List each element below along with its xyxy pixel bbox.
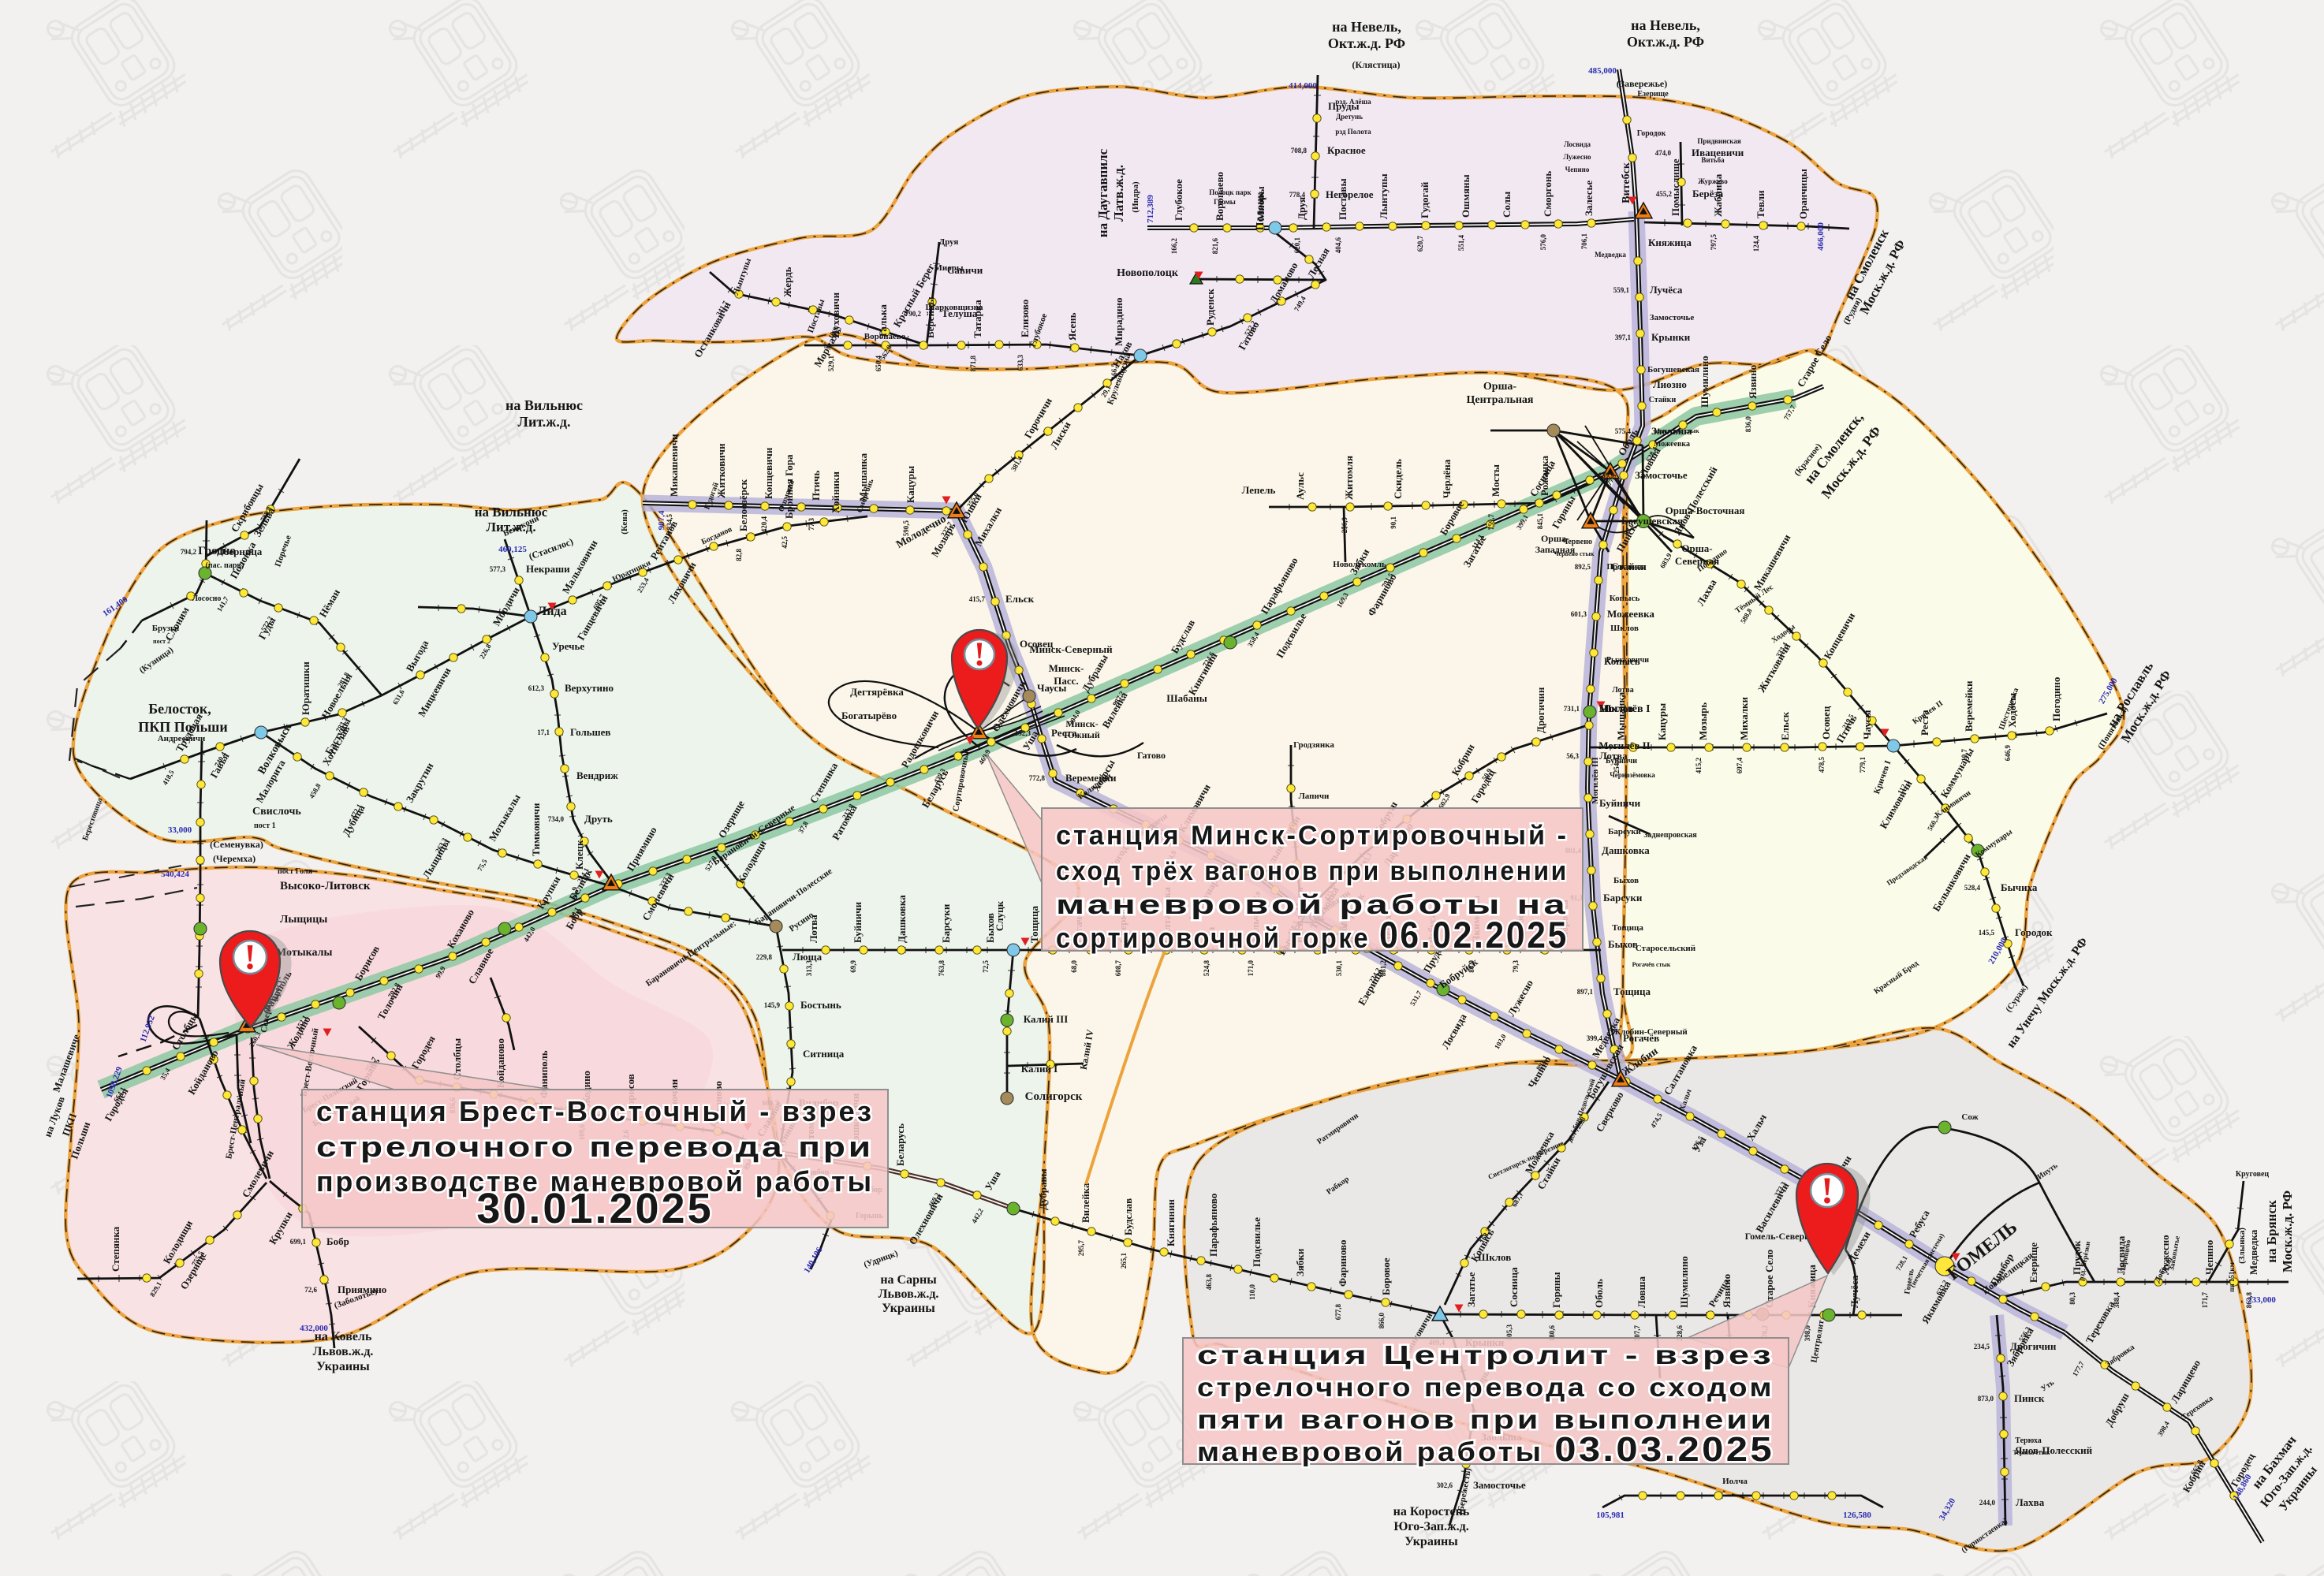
svg-text:Можеевка: Можеевка <box>1607 608 1654 620</box>
svg-text:845,1: 845,1 <box>1536 513 1544 530</box>
svg-text:Южный: Южный <box>1064 729 1100 740</box>
svg-text:ПКП Польши: ПКП Польши <box>138 719 228 735</box>
svg-text:Тощица: Тощица <box>1613 985 1651 997</box>
svg-text:Лахва: Лахва <box>2016 1496 2045 1508</box>
svg-text:Можеевка: Можеевка <box>1654 440 1690 449</box>
svg-text:Мозырь: Мозырь <box>1697 702 1709 740</box>
svg-text:Жердь: Жердь <box>782 266 793 297</box>
svg-text:Рыжковичи: Рыжковичи <box>1606 656 1649 665</box>
svg-text:Лиозно: Лиозно <box>1653 378 1687 390</box>
svg-text:772,8: 772,8 <box>1029 774 1046 782</box>
svg-text:(Черемха): (Черемха) <box>213 853 256 864</box>
svg-text:Круговец: Круговец <box>2236 1170 2270 1179</box>
svg-text:Зябки: Зябки <box>1294 1248 1306 1276</box>
svg-text:Чаусы: Чаусы <box>1861 710 1873 740</box>
svg-text:Ошмяны: Ошмяны <box>1460 174 1472 218</box>
svg-text:сход трёх вагонов при выполнен: сход трёх вагонов при выполнении <box>1056 856 1569 886</box>
svg-text:Лучёса: Лучёса <box>1650 284 1683 296</box>
svg-text:233,000: 233,000 <box>2248 1295 2276 1305</box>
svg-text:699,1: 699,1 <box>290 1238 307 1246</box>
svg-text:171,0: 171,0 <box>1247 960 1255 977</box>
svg-text:Новополоцк: Новополоцк <box>1117 267 1179 279</box>
svg-text:станция Брест-Восточный - взре: станция Брест-Восточный - взрез <box>316 1095 874 1127</box>
svg-text:466,000: 466,000 <box>1816 222 1826 251</box>
svg-text:79,3: 79,3 <box>1512 960 1520 973</box>
svg-text:Могилёв I: Могилёв I <box>1598 703 1650 715</box>
svg-text:Дрогичин: Дрогичин <box>2010 1340 2057 1352</box>
svg-text:(Клястица): (Клястица) <box>1352 59 1401 70</box>
svg-text:432,000: 432,000 <box>300 1324 328 1333</box>
svg-text:Буйничи: Буйничи <box>1599 797 1641 809</box>
svg-text:Мирадино: Мирадино <box>1113 297 1125 346</box>
svg-text:608,7: 608,7 <box>1114 960 1122 977</box>
svg-text:731,1: 731,1 <box>1564 705 1580 713</box>
svg-text:Горяны: Горяны <box>1550 1272 1562 1308</box>
svg-text:404,6: 404,6 <box>1334 237 1342 254</box>
svg-text:Быхов: Быхов <box>1608 938 1638 950</box>
svg-text:Крынки: Крынки <box>1651 331 1691 343</box>
svg-text:Брузги: Брузги <box>152 624 180 633</box>
svg-text:871,8: 871,8 <box>969 356 977 372</box>
svg-text:Аульс: Аульс <box>1294 472 1306 500</box>
svg-text:821,6: 821,6 <box>1211 238 1219 255</box>
svg-text:Моск.ж.д. РФ: Моск.ж.д. РФ <box>2280 1190 2295 1272</box>
svg-text:68,0: 68,0 <box>1070 960 1078 973</box>
svg-text:Можеевка стык: Можеевка стык <box>1654 427 1699 434</box>
svg-text:Лит.ж.д.: Лит.ж.д. <box>518 414 571 430</box>
svg-text:Жлобин-Северный: Жлобин-Северный <box>1612 1027 1688 1037</box>
svg-text:Лыщицы: Лыщицы <box>280 914 327 926</box>
svg-text:Чернозёмовка: Чернозёмовка <box>1610 771 1655 779</box>
svg-text:Боровое: Боровое <box>1380 1257 1392 1295</box>
svg-text:Пинск: Пинск <box>2014 1392 2045 1404</box>
svg-text:Фариново: Фариново <box>1337 1240 1349 1287</box>
svg-text:145,9: 145,9 <box>764 1001 781 1009</box>
svg-text:697,4: 697,4 <box>1736 758 1744 774</box>
svg-text:Минск-Северный: Минск-Северный <box>1029 643 1113 655</box>
svg-text:Украины: Украины <box>882 1302 935 1315</box>
svg-text:794,2: 794,2 <box>181 548 197 556</box>
svg-text:Иолча: Иолча <box>1722 1477 1748 1486</box>
svg-text:(Завережье): (Завережье) <box>1617 78 1668 89</box>
svg-text:Мосты: Мосты <box>1490 464 1501 497</box>
svg-text:Копцевичи: Копцевичи <box>763 447 774 499</box>
svg-text:Медведка: Медведка <box>2248 1229 2259 1275</box>
svg-text:Друя: Друя <box>939 237 959 247</box>
svg-text:Воропаево: Воропаево <box>864 332 906 341</box>
svg-text:Ситница: Ситница <box>803 1048 845 1060</box>
svg-text:Витебск: Витебск <box>1621 162 1632 203</box>
svg-text:Княгинин: Княгинин <box>1165 1199 1177 1246</box>
svg-text:576,0: 576,0 <box>1539 234 1547 251</box>
svg-text:Окт.ж.д. РФ: Окт.ж.д. РФ <box>1627 34 1704 50</box>
svg-text:Богатырёво: Богатырёво <box>841 710 897 721</box>
svg-text:575,4: 575,4 <box>1615 427 1632 435</box>
svg-text:Веремейки: Веремейки <box>1963 680 1975 732</box>
svg-text:стрелочного перевода со сходом: стрелочного перевода со сходом <box>1197 1373 1774 1402</box>
svg-text:стрелочного перевода при: стрелочного перевода при <box>316 1131 874 1163</box>
svg-text:706,1: 706,1 <box>1580 233 1588 250</box>
svg-text:Погодино: Погодино <box>2050 677 2062 721</box>
svg-text:80,3: 80,3 <box>2068 1292 2076 1305</box>
svg-text:Столбцы: Столбцы <box>451 1038 463 1080</box>
svg-text:778,4: 778,4 <box>1289 191 1306 199</box>
svg-text:Гольшев: Гольшев <box>570 726 610 738</box>
svg-text:пост Голя: пост Голя <box>278 867 313 876</box>
svg-text:Осовец: Осовец <box>1820 706 1832 740</box>
svg-text:633,3: 633,3 <box>1017 355 1024 371</box>
svg-text:Орша-: Орша- <box>1483 381 1516 393</box>
svg-text:Парафьяново: Парафьяново <box>1207 1194 1219 1257</box>
svg-text:234,5: 234,5 <box>1974 1343 1990 1351</box>
svg-text:414,000: 414,000 <box>1289 81 1317 91</box>
svg-text:779,1: 779,1 <box>1859 757 1867 773</box>
svg-text:Тимковичи: Тимковичи <box>530 803 542 856</box>
svg-text:551,4: 551,4 <box>1457 235 1465 251</box>
svg-text:Быхов: Быхов <box>1613 876 1639 885</box>
svg-text:Залесье: Залесье <box>1583 181 1595 216</box>
svg-text:Руденск: Руденск <box>1204 289 1216 326</box>
svg-text:Заднепровская: Заднепровская <box>1643 831 1697 840</box>
svg-text:Язвино: Язвино <box>1747 365 1759 399</box>
svg-text:рзд. Алёша: рзд. Алёша <box>1335 98 1371 106</box>
svg-text:478,5: 478,5 <box>1818 757 1826 773</box>
svg-text:Терюха стык: Терюха стык <box>2013 1449 2050 1456</box>
svg-text:Лепель: Лепель <box>1242 484 1276 496</box>
svg-text:Шабаны: Шабаны <box>1166 692 1207 704</box>
svg-text:(Индра): (Индра) <box>1131 181 1140 213</box>
svg-text:Верхутино: Верхутино <box>565 682 614 694</box>
svg-text:Шумилино: Шумилино <box>1678 1256 1690 1308</box>
svg-text:Вилейка: Вилейка <box>1080 1183 1091 1223</box>
svg-text:Дегтярёвка: Дегтярёвка <box>850 686 904 698</box>
svg-text:Лужесно: Лужесно <box>1563 153 1591 161</box>
svg-text:Красное: Красное <box>1327 144 1366 156</box>
svg-text:(пас. парк): (пас. парк) <box>206 561 244 570</box>
svg-text:646,9: 646,9 <box>2004 745 2012 762</box>
svg-text:Замосточье: Замосточье <box>1635 469 1688 481</box>
svg-text:Оболь: Оболь <box>1593 1279 1605 1308</box>
svg-text:256,9: 256,9 <box>1341 517 1349 534</box>
svg-text:485,000: 485,000 <box>1588 66 1617 76</box>
svg-text:Микашевичи: Микашевичи <box>668 434 680 497</box>
svg-text:Черлёна: Черлёна <box>1441 459 1453 498</box>
svg-text:145,5: 145,5 <box>1979 929 1995 937</box>
svg-text:Тевли: Тевли <box>1755 190 1766 218</box>
svg-text:!: ! <box>974 636 985 673</box>
svg-text:Сосница: Сосница <box>1508 1267 1520 1307</box>
svg-text:Старосельский: Старосельский <box>1636 944 1696 953</box>
svg-text:Михалки: Михалки <box>1738 697 1750 740</box>
svg-text:77,3: 77,3 <box>808 518 815 531</box>
svg-text:415,2: 415,2 <box>1695 758 1703 774</box>
svg-text:Вендриж: Вендриж <box>576 769 618 781</box>
svg-text:Гродзянка: Гродзянка <box>1293 740 1334 750</box>
svg-text:Елизово: Елизово <box>1019 300 1031 337</box>
svg-text:на Невель,: на Невель, <box>1332 19 1401 35</box>
svg-text:124,4: 124,4 <box>1752 236 1760 252</box>
svg-text:Гудогай: Гудогай <box>1419 181 1431 218</box>
svg-text:Гродно: Гродно <box>198 545 236 557</box>
svg-text:Львов.ж.д.: Львов.ж.д. <box>313 1345 374 1358</box>
svg-text:Дрогичин: Дрогичин <box>1535 687 1546 733</box>
svg-text:90,1: 90,1 <box>1390 516 1397 529</box>
svg-text:105,981: 105,981 <box>1596 1511 1625 1520</box>
svg-text:Дашковка: Дашковка <box>1602 844 1650 856</box>
svg-text:69,9: 69,9 <box>849 960 857 973</box>
svg-text:Стайки: Стайки <box>1649 396 1677 404</box>
svg-text:Городок: Городок <box>1637 129 1666 138</box>
svg-text:Червено стык: Червено стык <box>1554 550 1595 557</box>
svg-text:Гатово: Гатово <box>1137 750 1166 761</box>
svg-text:873,0: 873,0 <box>1978 1395 1994 1403</box>
svg-text:Шарковщизна: Шарковщизна <box>926 303 983 312</box>
svg-text:Ясень: Ясень <box>1066 312 1078 341</box>
svg-text:Громы: Громы <box>1214 198 1236 206</box>
svg-text:Барсуки: Барсуки <box>940 903 952 943</box>
svg-text:Лынтупы: Лынтупы <box>1378 173 1390 219</box>
svg-text:530,1: 530,1 <box>1335 960 1343 977</box>
svg-text:Полоцк: Полоцк <box>1255 192 1266 231</box>
svg-text:Степянка: Степянка <box>110 1226 121 1272</box>
svg-text:Житомля: Житомля <box>1343 456 1355 500</box>
svg-text:Тощица: Тощица <box>1028 905 1040 943</box>
svg-text:Чепино: Чепино <box>1565 166 1590 173</box>
svg-text:265,1: 265,1 <box>1120 1253 1128 1269</box>
svg-text:Шклов: Шклов <box>1478 1251 1511 1263</box>
svg-text:Езерище: Езерище <box>1637 90 1669 99</box>
svg-text:Лососно: Лососно <box>192 594 222 603</box>
svg-text:Центральная: Центральная <box>1466 394 1533 406</box>
svg-text:152,3: 152,3 <box>1015 729 1031 737</box>
svg-text:Городок: Городок <box>2015 926 2053 938</box>
svg-text:на Невель,: на Невель, <box>1631 17 1700 33</box>
svg-text:763,8: 763,8 <box>938 960 946 977</box>
svg-text:Будслав: Будслав <box>1122 1198 1134 1235</box>
svg-text:836,0: 836,0 <box>1744 416 1752 433</box>
svg-text:Минск-: Минск- <box>1049 662 1084 674</box>
svg-text:Беларусь: Беларусь <box>894 1123 906 1166</box>
svg-text:Червено: Червено <box>1562 538 1592 546</box>
svg-text:171,7: 171,7 <box>2201 1292 2209 1309</box>
svg-text:Бобр: Бобр <box>326 1235 349 1247</box>
svg-text:станция Минск-Сортировочный -: станция Минск-Сортировочный - <box>1056 821 1569 851</box>
svg-text:Глубокое: Глубокое <box>1173 179 1184 221</box>
svg-text:Копысь: Копысь <box>1610 594 1640 603</box>
svg-text:пост 1: пост 1 <box>254 822 276 830</box>
svg-text:42,5: 42,5 <box>781 536 789 549</box>
svg-text:Минск-: Минск- <box>1065 718 1098 729</box>
svg-text:420,4: 420,4 <box>760 516 768 533</box>
svg-text:Слуцк: Слуцк <box>994 900 1005 931</box>
svg-text:620,7: 620,7 <box>1416 236 1424 252</box>
svg-text:Барсуки: Барсуки <box>1608 827 1641 836</box>
svg-text:302,6: 302,6 <box>1437 1481 1453 1489</box>
svg-text:540,424: 540,424 <box>161 870 189 879</box>
svg-text:Дубравы: Дубравы <box>1037 1168 1049 1210</box>
svg-text:Скидель: Скидель <box>1392 459 1404 499</box>
svg-text:Княжица: Княжица <box>1648 237 1692 248</box>
svg-text:на Вильнюс: на Вильнюс <box>505 397 583 413</box>
svg-text:Клецк: Клецк <box>573 840 585 870</box>
svg-text:Лида: Лида <box>537 605 566 618</box>
svg-text:524,8: 524,8 <box>1203 960 1210 977</box>
svg-text:881,2: 881,2 <box>1379 960 1387 977</box>
svg-text:Лосвида: Лосвида <box>1564 140 1591 148</box>
svg-text:Орша-: Орша- <box>1681 542 1712 554</box>
svg-text:Могилёв II: Могилёв II <box>1598 740 1650 751</box>
svg-text:Бычиха: Бычиха <box>2001 881 2038 893</box>
svg-text:Богушевская: Богушевская <box>1647 365 1699 374</box>
svg-text:Пасс.: Пасс. <box>1054 675 1078 687</box>
svg-text:Солы: Солы <box>1501 192 1513 218</box>
svg-text:Кацуры: Кацуры <box>905 466 916 503</box>
svg-text:!: ! <box>244 937 256 977</box>
svg-text:Калий III: Калий III <box>1024 1013 1069 1025</box>
svg-text:620,1: 620,1 <box>1293 237 1301 254</box>
svg-text:Кацуры: Кацуры <box>1656 703 1668 740</box>
svg-text:Белосток,: Белосток, <box>148 701 211 717</box>
svg-text:Терюха: Терюха <box>2015 1436 2041 1445</box>
svg-text:Латв.ж.д.: Латв.ж.д. <box>1111 165 1126 222</box>
svg-text:82,8: 82,8 <box>735 549 743 561</box>
svg-text:110,0: 110,0 <box>1248 1284 1256 1300</box>
svg-text:397,1: 397,1 <box>1615 333 1632 341</box>
svg-text:Друя: Друя <box>1296 197 1307 220</box>
svg-text:Лучёса: Лучёса <box>1848 1275 1860 1308</box>
svg-text:244,0: 244,0 <box>1979 1499 1996 1507</box>
svg-text:Прокшино: Прокшино <box>1606 563 1645 572</box>
svg-text:455,2: 455,2 <box>1656 190 1673 198</box>
svg-text:797,5: 797,5 <box>1710 234 1718 251</box>
svg-text:415,7: 415,7 <box>969 595 986 603</box>
svg-text:Андреевичи: Андреевичи <box>158 734 206 743</box>
svg-text:Дашковка: Дашковка <box>896 895 908 943</box>
svg-text:Украины: Украины <box>1404 1535 1458 1548</box>
svg-text:Ельск: Ельск <box>1779 711 1791 740</box>
svg-text:Окт.ж.д. РФ: Окт.ж.д. РФ <box>1328 35 1405 51</box>
svg-text:Тощица: Тощица <box>1612 923 1643 933</box>
svg-text:Буйничи: Буйничи <box>1606 757 1637 766</box>
svg-text:72,6: 72,6 <box>304 1286 317 1294</box>
svg-text:30.01.2025: 30.01.2025 <box>476 1185 713 1232</box>
svg-text:Калий I: Калий I <box>1021 1063 1058 1075</box>
svg-text:17,1: 17,1 <box>537 728 550 736</box>
svg-text:(Злынка): (Злынка) <box>2237 1228 2247 1264</box>
svg-text:Дретунь: Дретунь <box>1336 113 1363 121</box>
svg-text:(Кена): (Кена) <box>620 509 629 535</box>
svg-text:Бостынь: Бостынь <box>800 999 841 1011</box>
svg-text:!: ! <box>1821 1170 1833 1212</box>
svg-text:Буйничи: Буйничи <box>852 901 864 943</box>
svg-text:Белоозёрск: Белоозёрск <box>737 479 749 531</box>
svg-text:866,0: 866,0 <box>1378 1313 1386 1329</box>
svg-text:Витьба: Витьба <box>1701 156 1725 164</box>
svg-text:907,4: 907,4 <box>657 510 666 530</box>
svg-text:460,125: 460,125 <box>498 545 527 554</box>
svg-text:229,8: 229,8 <box>756 953 773 961</box>
svg-text:577,3: 577,3 <box>490 565 506 573</box>
svg-text:Некраши: Некраши <box>526 563 570 575</box>
svg-text:734,0: 734,0 <box>548 815 565 823</box>
svg-text:пп 151км: пп 151км <box>2228 1262 2236 1291</box>
svg-text:Негорелое: Негорелое <box>1326 188 1374 200</box>
svg-text:Мышанка: Мышанка <box>1615 691 1627 740</box>
svg-text:Шклов: Шклов <box>1610 624 1639 633</box>
svg-text:859,9: 859,9 <box>1598 471 1615 479</box>
svg-text:Подсвилье: Подсвилье <box>1251 1217 1263 1267</box>
svg-text:33,000: 33,000 <box>168 825 192 835</box>
svg-text:Львов.ж.д.: Львов.ж.д. <box>878 1287 939 1301</box>
svg-text:Уречье: Уречье <box>552 640 584 652</box>
svg-text:601,3: 601,3 <box>1571 610 1587 618</box>
svg-text:Ельск: Ельск <box>1005 593 1035 605</box>
svg-text:126,580: 126,580 <box>1843 1511 1871 1520</box>
svg-text:Замосточье: Замосточье <box>1650 313 1695 322</box>
svg-text:Юго-Зап.ж.д.: Юго-Зап.ж.д. <box>1393 1520 1468 1533</box>
svg-text:Полоцк парк: Полоцк парк <box>1209 188 1252 196</box>
svg-text:Сморгонь: Сморгонь <box>1542 171 1554 217</box>
svg-text:Придвинская: Придвинская <box>1697 137 1741 145</box>
svg-text:Орша-Восточная: Орша-Восточная <box>1666 505 1745 516</box>
svg-text:Миоры: Миоры <box>934 263 964 273</box>
svg-text:Хойники: Хойники <box>830 471 841 513</box>
svg-text:72,5: 72,5 <box>982 960 990 973</box>
svg-text:Украины: Украины <box>316 1360 370 1373</box>
svg-text:Рогачёв стык: Рогачёв стык <box>1632 961 1671 968</box>
svg-text:612,3: 612,3 <box>528 684 545 692</box>
svg-text:на Даугавпилс: на Даугавпилс <box>1095 148 1110 237</box>
svg-text:474,0: 474,0 <box>1655 149 1672 157</box>
svg-text:Высоко-Литовск: Высоко-Литовск <box>280 880 371 892</box>
svg-text:Рожанка: Рожанка <box>1539 455 1550 496</box>
svg-text:(Семенувка): (Семенувка) <box>210 839 263 850</box>
svg-text:Чепино: Чепино <box>2203 1240 2215 1275</box>
svg-text:Шумилино: Шумилино <box>1699 356 1710 408</box>
svg-text:пост 2: пост 2 <box>153 638 170 645</box>
svg-text:Помыслище: Помыслище <box>1669 158 1681 216</box>
svg-text:677,8: 677,8 <box>1334 1304 1342 1321</box>
svg-text:Лотва: Лотва <box>1612 686 1633 695</box>
svg-text:Барсуки: Барсуки <box>1603 892 1643 903</box>
svg-text:559,1: 559,1 <box>1613 286 1630 294</box>
svg-text:Сож: Сож <box>1961 1112 1978 1122</box>
svg-text:Оранчицы: Оранчицы <box>1797 169 1809 219</box>
svg-text:Ловша: Ловша <box>1636 1276 1647 1308</box>
svg-text:295,7: 295,7 <box>1077 1240 1085 1257</box>
svg-text:529,1: 529,1 <box>827 356 835 372</box>
svg-text:56,3: 56,3 <box>1566 752 1579 760</box>
svg-text:на Брянск: на Брянск <box>2264 1200 2279 1263</box>
svg-text:Берёза: Берёза <box>1692 188 1724 199</box>
svg-text:станция Центролит - взрез: станция Центролит - взрез <box>1197 1340 1774 1369</box>
svg-text:на Сарны: на Сарны <box>880 1273 937 1287</box>
svg-text:388,4: 388,4 <box>2113 1292 2121 1309</box>
svg-text:Солигорск: Солигорск <box>1025 1090 1083 1103</box>
svg-text:528,4: 528,4 <box>1964 884 1981 892</box>
svg-text:892,5: 892,5 <box>1575 563 1591 571</box>
svg-text:Загатье: Загатье <box>1465 1272 1477 1307</box>
svg-text:712,389: 712,389 <box>1146 195 1155 223</box>
svg-text:Замосточье: Замосточье <box>1473 1479 1526 1491</box>
svg-text:рзд Полота: рзд Полота <box>1335 128 1371 136</box>
svg-text:313,3: 313,3 <box>805 960 813 977</box>
svg-text:708,8: 708,8 <box>1291 147 1307 155</box>
svg-text:166,2: 166,2 <box>1170 238 1178 255</box>
svg-text:Новолукомль: Новолукомль <box>1333 560 1386 569</box>
svg-text:Свислочь: Свислочь <box>252 806 301 818</box>
svg-text:Журжево: Журжево <box>1698 177 1728 185</box>
